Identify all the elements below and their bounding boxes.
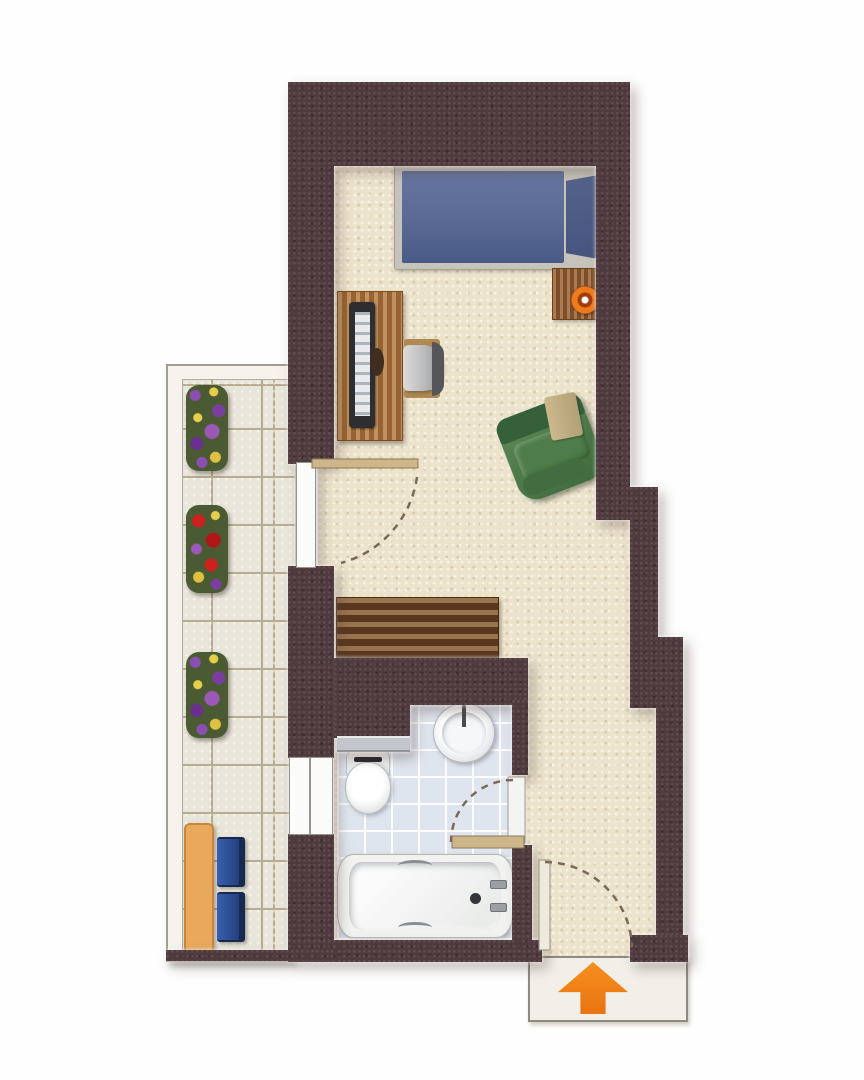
wall-right-3 — [630, 637, 683, 708]
cistern-ledge — [337, 736, 410, 752]
balcony-door-frame — [296, 462, 316, 568]
balcony-edge-bottom — [166, 950, 336, 961]
wall-bathroom-east-top — [512, 700, 528, 775]
wall-bathroom-north-left — [334, 658, 410, 738]
bathroom-window — [289, 757, 333, 835]
wall-bottom-right — [630, 935, 688, 962]
wall-bathroom-east-bottom — [512, 845, 532, 945]
floorplan-canvas — [0, 0, 864, 1080]
wall-left-middle — [288, 566, 334, 758]
wall-right-1 — [596, 82, 630, 520]
window-pane-divider — [309, 758, 311, 834]
wall-right-4 — [656, 708, 683, 962]
wall-left-upper — [288, 82, 334, 464]
wall-right-2 — [630, 487, 658, 637]
wall-top — [288, 82, 630, 166]
walls-layer — [0, 0, 864, 1080]
